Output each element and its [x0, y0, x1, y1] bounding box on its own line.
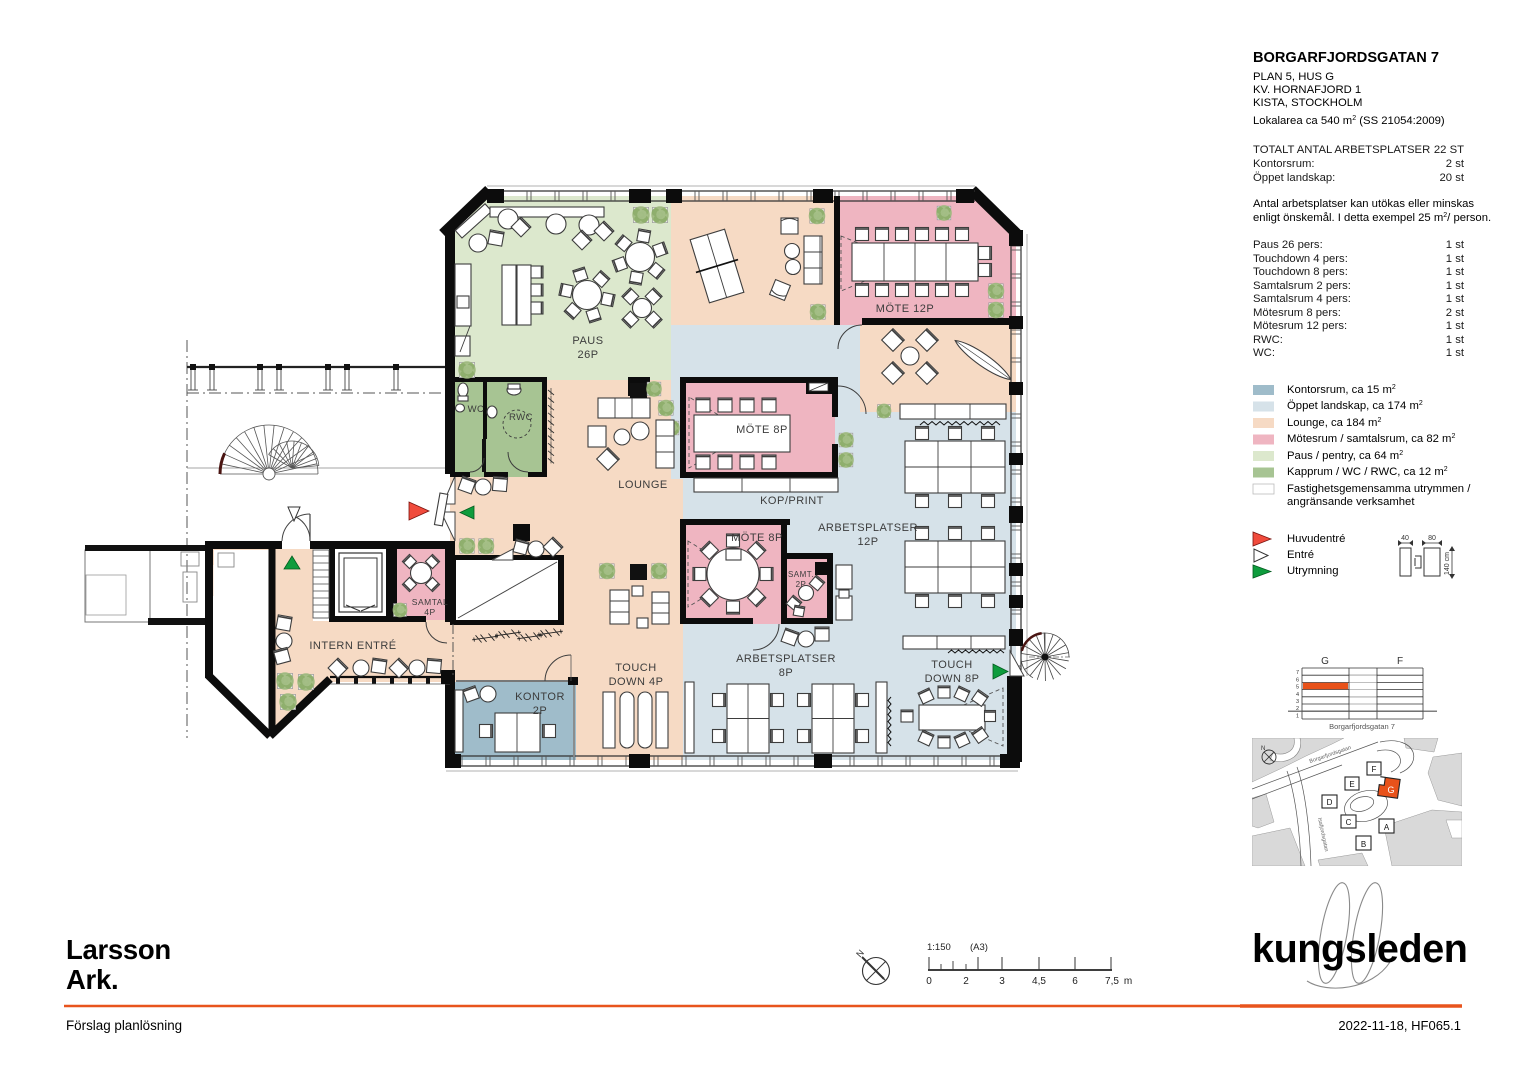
svg-text:D: D — [1327, 798, 1333, 807]
svg-text:2: 2 — [963, 976, 969, 987]
svg-text:7,5: 7,5 — [1105, 976, 1119, 987]
svg-text:KONTOR: KONTOR — [515, 691, 565, 703]
svg-text:40: 40 — [1401, 535, 1409, 542]
svg-text:INTERN ENTRÉ: INTERN ENTRÉ — [309, 639, 396, 652]
svg-text:12P: 12P — [857, 536, 878, 548]
svg-text:WC: WC — [468, 404, 485, 415]
svg-text:A: A — [1384, 823, 1390, 832]
svg-text:Borgarfjordsgatan 7: Borgarfjordsgatan 7 — [1329, 722, 1395, 731]
svg-text:SAMT.: SAMT. — [788, 570, 814, 579]
svg-text:26P: 26P — [577, 349, 598, 361]
svg-text:8P: 8P — [779, 667, 793, 679]
svg-text:F: F — [1372, 765, 1377, 774]
svg-text:LOUNGE: LOUNGE — [618, 479, 667, 491]
svg-text:3: 3 — [1296, 699, 1299, 705]
svg-text:F: F — [1397, 656, 1403, 667]
svg-text:6: 6 — [1072, 976, 1078, 987]
svg-text:DOWN 8P: DOWN 8P — [925, 673, 980, 685]
svg-text:G: G — [1321, 656, 1329, 667]
svg-text:RWC: RWC — [509, 412, 533, 423]
svg-text:KOP/PRINT: KOP/PRINT — [760, 495, 824, 507]
svg-text:N: N — [1261, 746, 1265, 752]
svg-text:TOUCH: TOUCH — [931, 659, 972, 671]
svg-text:N: N — [854, 948, 866, 960]
svg-text:DOWN 4P: DOWN 4P — [609, 676, 664, 688]
svg-text:0: 0 — [926, 976, 932, 987]
svg-text:C: C — [1346, 818, 1352, 827]
svg-text:MÖTE 8P: MÖTE 8P — [731, 532, 783, 544]
svg-text:ARBETSPLATSER: ARBETSPLATSER — [818, 522, 918, 534]
svg-text:SAMTAL: SAMTAL — [412, 597, 448, 607]
svg-text:PAUS: PAUS — [572, 335, 603, 347]
svg-text:2P: 2P — [533, 705, 547, 717]
svg-text:3: 3 — [999, 976, 1005, 987]
svg-text:1:150: 1:150 — [927, 942, 951, 953]
svg-text:4: 4 — [1296, 692, 1299, 698]
svg-text:MÖTE 8P: MÖTE 8P — [736, 424, 788, 436]
svg-text:7: 7 — [1296, 670, 1299, 676]
svg-text:MÖTE 12P: MÖTE 12P — [876, 303, 934, 315]
svg-text:G: G — [1387, 785, 1394, 795]
svg-text:1: 1 — [1296, 713, 1299, 719]
svg-text:6: 6 — [1296, 677, 1299, 683]
svg-text:E: E — [1349, 780, 1354, 789]
svg-text:2P: 2P — [796, 580, 807, 589]
svg-text:80: 80 — [1428, 535, 1436, 542]
svg-text:2: 2 — [1296, 706, 1299, 712]
svg-text:B: B — [1361, 840, 1366, 849]
svg-text:5: 5 — [1296, 685, 1299, 691]
svg-text:ARBETSPLATSER: ARBETSPLATSER — [736, 653, 836, 665]
svg-text:TOUCH: TOUCH — [615, 662, 656, 674]
svg-text:m: m — [1124, 976, 1132, 987]
svg-text:4P: 4P — [424, 607, 435, 617]
svg-text:Isafjordsgatan: Isafjordsgatan — [1316, 817, 1329, 852]
svg-text:(A3): (A3) — [970, 942, 988, 953]
svg-text:140 cm: 140 cm — [1444, 552, 1451, 575]
svg-text:4,5: 4,5 — [1032, 976, 1046, 987]
